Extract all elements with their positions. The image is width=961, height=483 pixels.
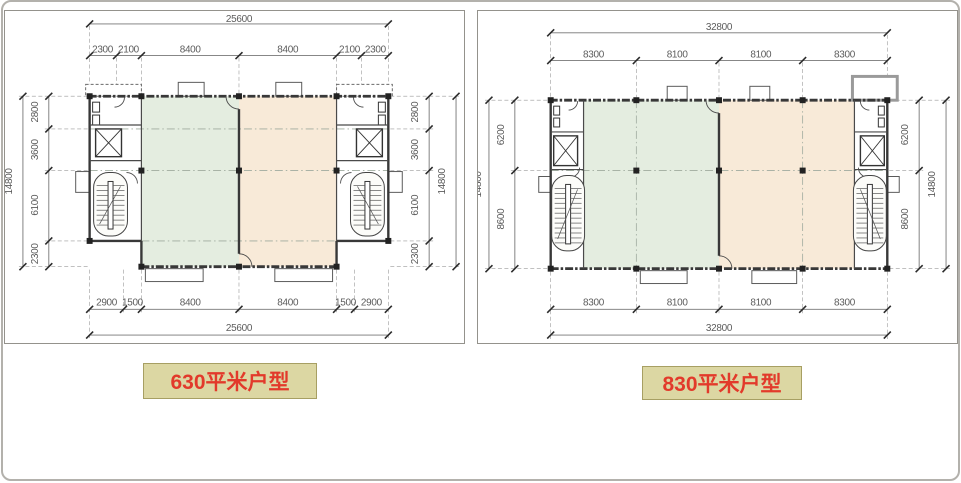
dim-top-seg: 8100 <box>667 50 689 61</box>
unit-label-630-text: 630平米户型 <box>170 366 289 396</box>
room-right-peach <box>719 100 854 268</box>
core-right <box>853 101 887 251</box>
dim-top-seg: 2300 <box>92 45 114 56</box>
dim-side-total: 14800 <box>437 168 448 195</box>
floor-plan-panel-630: 25600 2300 2100 8400 8400 2100 2300 2900… <box>4 10 465 344</box>
unit-label-830-text: 830平米户型 <box>662 368 781 398</box>
dim-top-seg: 2100 <box>118 45 140 56</box>
dim-side-seg: 2300 <box>30 243 41 265</box>
core-left <box>90 97 142 236</box>
floor-plan-630: 25600 2300 2100 8400 8400 2100 2300 2900… <box>5 11 464 343</box>
dim-side-seg: 6200 <box>900 124 911 146</box>
unit-label-630: 630平米户型 <box>143 363 317 399</box>
floor-plan-panel-830: 32800 8300 8100 8100 8300 8300 8100 8100… <box>477 10 958 344</box>
floor-plan-830: 32800 8300 8100 8100 8300 8300 8100 8100… <box>478 11 957 343</box>
dim-side-total: 14800 <box>478 171 484 198</box>
dim-top-seg: 8100 <box>750 50 772 61</box>
dim-bottom-seg: 8300 <box>834 297 856 308</box>
dim-top-seg: 8400 <box>180 45 202 56</box>
dim-bottom-seg: 2900 <box>361 297 383 308</box>
dim-side-seg: 8600 <box>900 208 911 230</box>
core-left <box>551 101 585 251</box>
dim-bottom-seg: 2900 <box>96 297 118 308</box>
dim-bottom-seg: 8400 <box>180 297 202 308</box>
dim-bottom-total: 25600 <box>226 323 253 334</box>
dim-bottom-seg: 8100 <box>667 297 689 308</box>
dim-top-total: 25600 <box>226 14 253 25</box>
dim-side-seg: 6200 <box>496 124 507 146</box>
unit-label-830: 830平米户型 <box>642 366 802 400</box>
dim-top-total: 32800 <box>706 22 733 33</box>
plan-graphics-630 <box>19 20 460 339</box>
room-left-green <box>584 100 719 268</box>
dim-top-seg: 8300 <box>583 50 605 61</box>
dim-top-seg: 2300 <box>365 45 387 56</box>
dim-side-seg: 8600 <box>496 208 507 230</box>
dim-side-seg: 2800 <box>30 101 41 123</box>
dim-top-seg: 8400 <box>277 45 299 56</box>
dim-bottom-seg: 8300 <box>583 297 605 308</box>
dim-bottom-total: 32800 <box>706 323 733 334</box>
core-right <box>337 97 389 236</box>
dim-side-total: 14800 <box>927 171 938 198</box>
dim-bottom-seg: 1500 <box>335 297 357 308</box>
dim-side-seg: 2300 <box>410 243 421 265</box>
dim-bottom-seg: 8100 <box>750 297 772 308</box>
dim-side-total: 14800 <box>5 168 15 195</box>
dim-bottom-seg: 1500 <box>122 297 144 308</box>
dim-side-seg: 3600 <box>410 139 421 161</box>
dim-bottom-seg: 8400 <box>277 297 299 308</box>
dim-side-seg: 3600 <box>30 139 41 161</box>
dim-side-seg: 2800 <box>410 101 421 123</box>
dim-top-seg: 2100 <box>339 45 361 56</box>
dim-side-seg: 6100 <box>410 194 421 216</box>
dim-top-seg: 8300 <box>834 50 856 61</box>
plan-graphics-830 <box>485 29 950 339</box>
walls <box>89 96 390 266</box>
dim-side-seg: 6100 <box>30 194 41 216</box>
